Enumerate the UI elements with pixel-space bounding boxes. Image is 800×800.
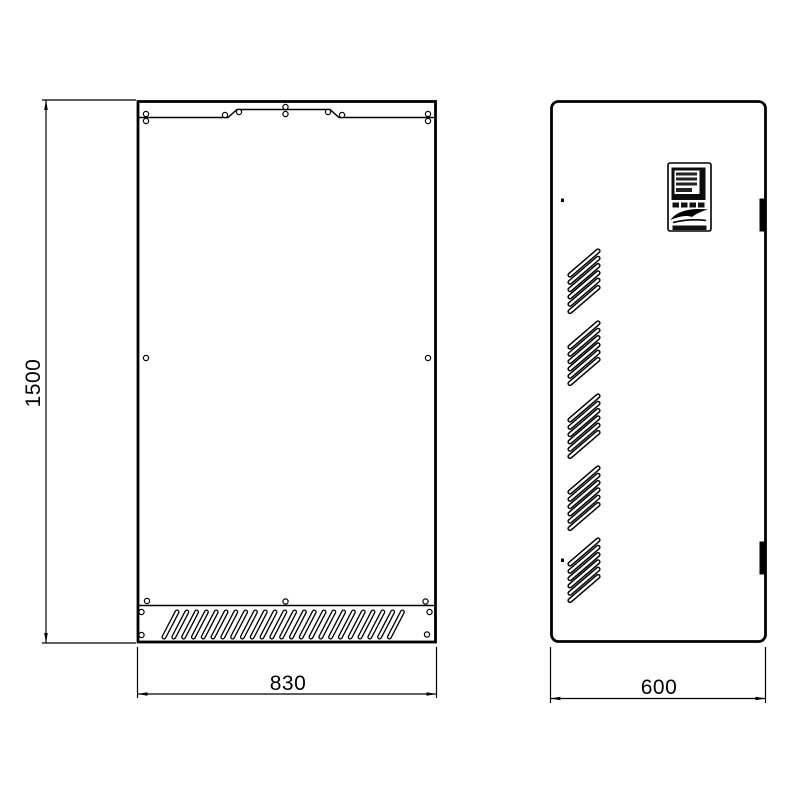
display-row	[676, 178, 697, 181]
screw-hole	[424, 632, 429, 637]
screw-hole	[425, 118, 430, 123]
cabinet-technical-drawing: 1500 830 600	[0, 0, 800, 800]
dimension-label-depth: 600	[641, 676, 678, 699]
panel-button	[690, 203, 697, 208]
screw-hole	[139, 609, 144, 614]
arrowhead	[44, 100, 48, 110]
screw-hole	[339, 112, 344, 117]
screw-hole	[143, 118, 148, 123]
panel-button	[681, 203, 688, 208]
screw-hole	[425, 355, 430, 360]
dimension-depth: 600	[551, 647, 766, 703]
display-row	[676, 188, 692, 192]
arrowhead	[427, 692, 437, 696]
arrowhead	[44, 633, 48, 643]
arrowhead	[138, 692, 148, 696]
arrowhead	[551, 697, 561, 701]
screw-hole	[425, 111, 430, 116]
screw-hole	[144, 598, 149, 603]
dimension-label-width: 830	[270, 672, 307, 695]
side-view	[552, 102, 767, 642]
display-row	[676, 173, 697, 176]
panel-button	[698, 203, 705, 208]
screw-hole	[283, 104, 288, 109]
screw-hole	[427, 609, 432, 614]
screw-hole	[423, 599, 428, 604]
door-hinge-top	[760, 199, 767, 232]
display-row	[676, 183, 697, 186]
screw-hole	[236, 109, 241, 114]
screw-hole	[283, 599, 288, 604]
front-panel-outline	[138, 102, 436, 643]
door-catch-dot	[561, 559, 564, 563]
panel-label-bar	[673, 226, 707, 231]
control-panel	[668, 163, 711, 231]
dimension-height: 1500	[22, 100, 136, 643]
screw-hole	[222, 112, 227, 117]
screw-hole	[283, 111, 288, 116]
dimension-label-height: 1500	[22, 359, 45, 408]
screw-hole	[143, 111, 148, 116]
drawing-canvas: 1500 830 600	[0, 0, 800, 800]
door-catch-dot	[561, 199, 564, 203]
front-view	[138, 102, 436, 643]
screw-hole	[325, 109, 330, 114]
arrowhead	[756, 697, 766, 701]
screw-hole	[143, 355, 148, 360]
dimension-width: 830	[138, 647, 437, 698]
panel-button	[673, 203, 680, 208]
screw-hole	[139, 632, 144, 637]
door-hinge-bottom	[760, 542, 767, 575]
